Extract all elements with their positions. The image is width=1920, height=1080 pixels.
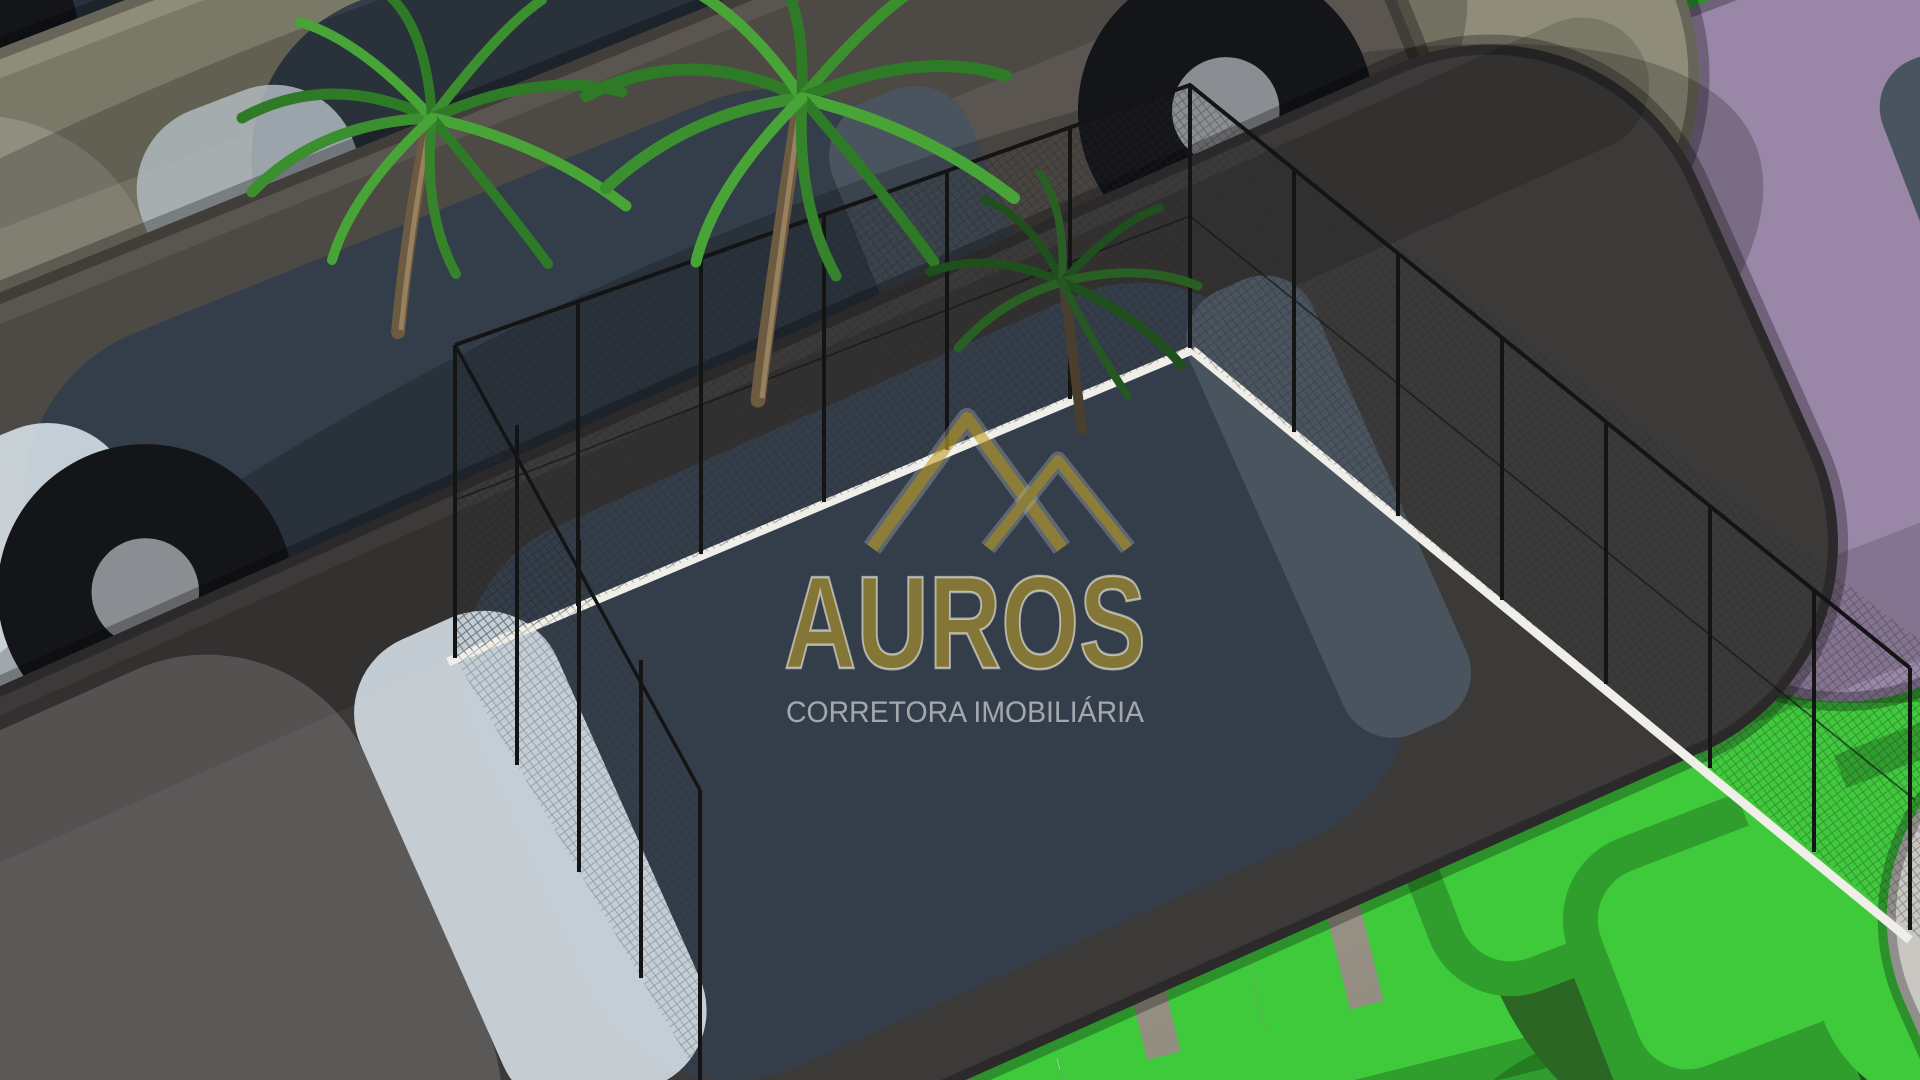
watermark-title: AUROS xyxy=(784,549,1146,696)
render-image: AUROS CORRETORA IMOBILIÁRIA xyxy=(0,0,1920,1080)
watermark-subtitle: CORRETORA IMOBILIÁRIA xyxy=(786,696,1144,729)
scene-svg: AUROS CORRETORA IMOBILIÁRIA xyxy=(0,0,1920,1080)
